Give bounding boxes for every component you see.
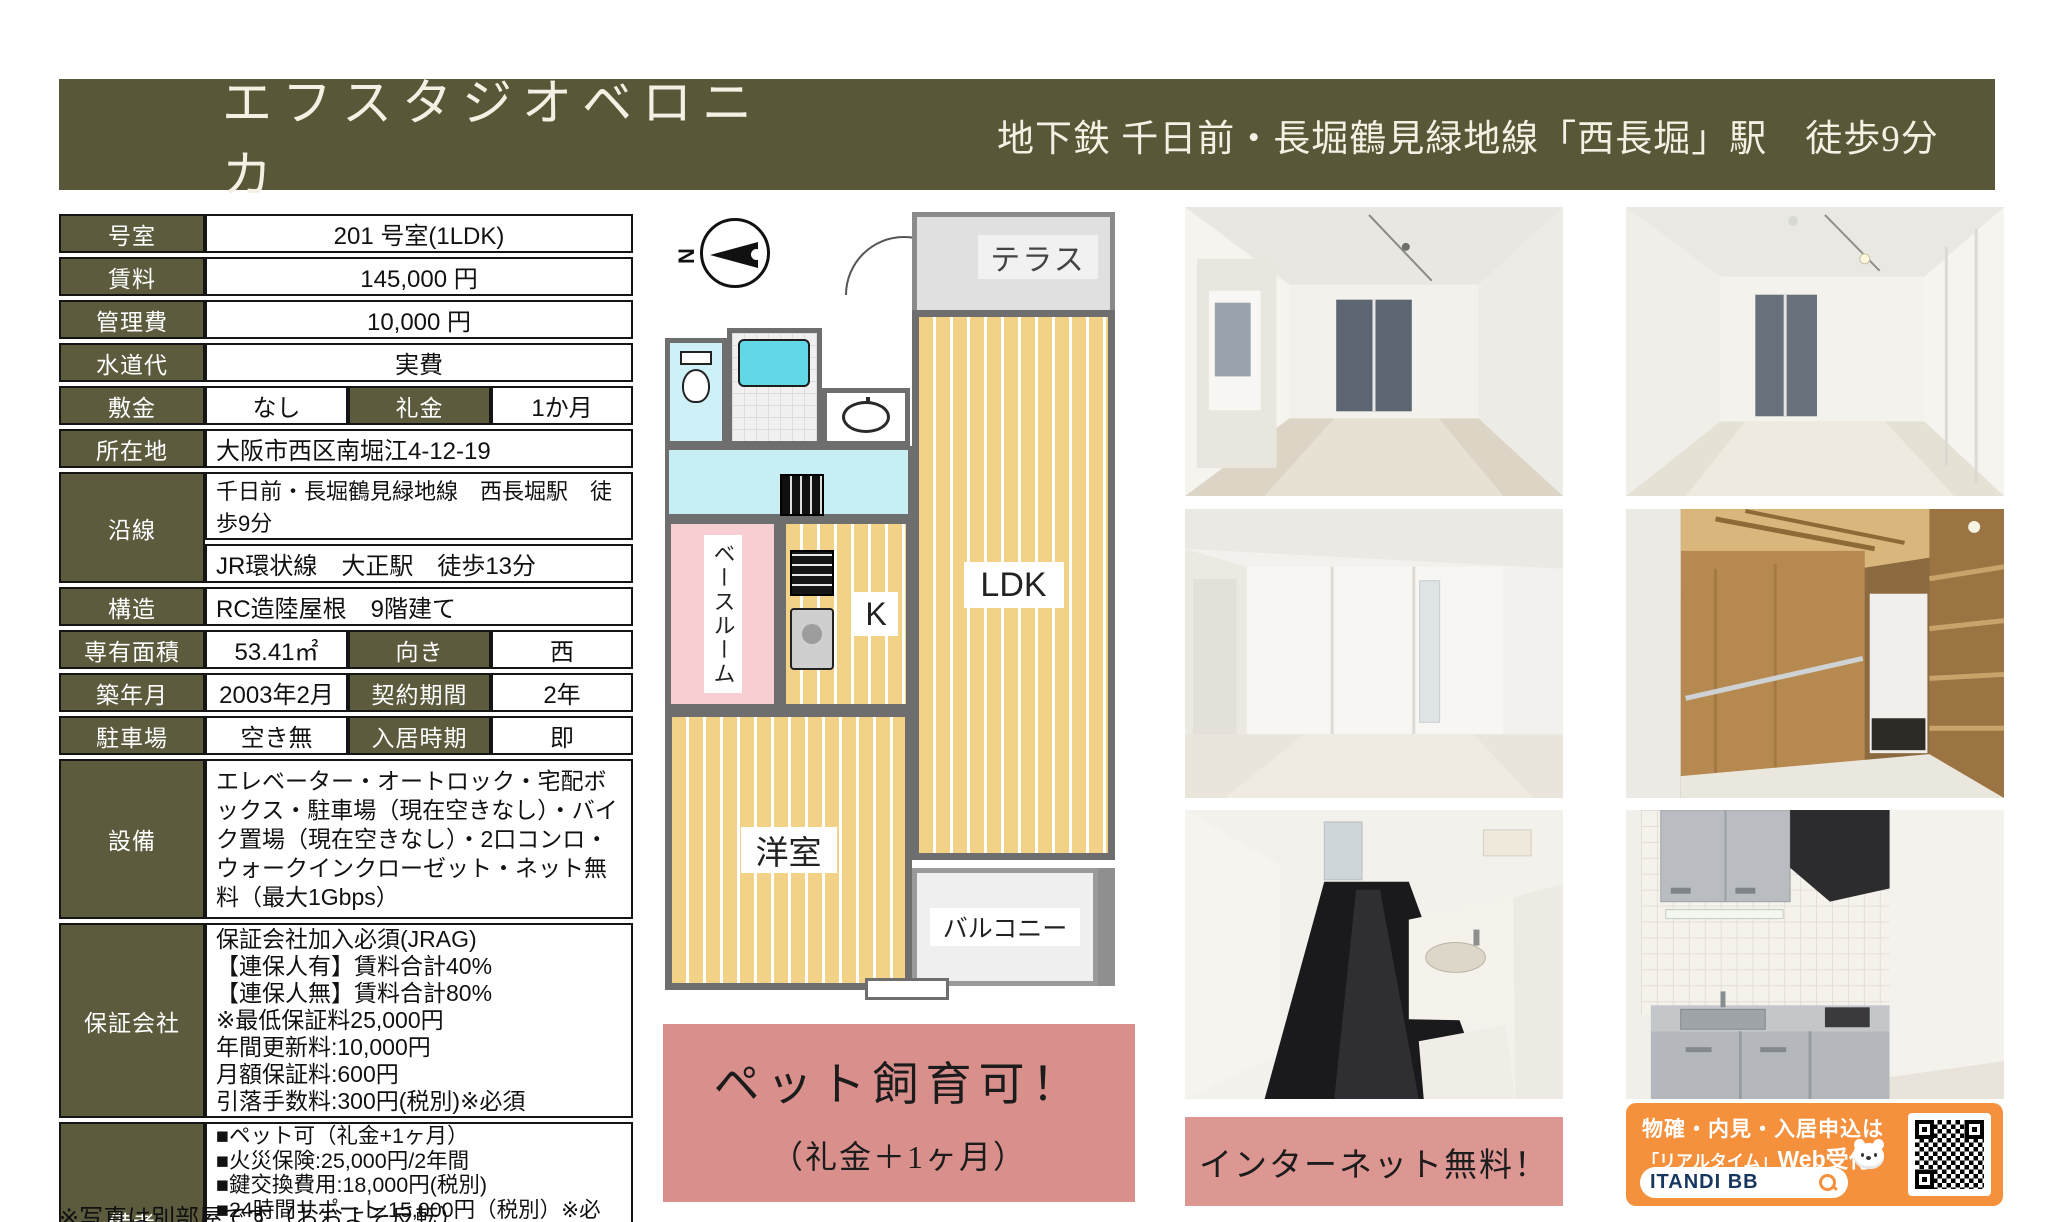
room-kitchen: K <box>780 518 912 710</box>
kitchen-label: K <box>854 592 898 636</box>
station-access-text: 地下鉄 千日前・長堀鶴見緑地線「西長堀」駅 徒歩9分 <box>997 79 1939 190</box>
parking-label: 駐車場 <box>59 716 205 755</box>
area-value: 53.41㎡ <box>205 630 348 669</box>
notes-line: ■火災保険:25,000円/2年間 <box>216 1149 622 1174</box>
base-room-label: ベースルーム <box>704 535 742 693</box>
room-number-value: 201 号室(1LDK) <box>205 214 633 253</box>
water-label: 水道代 <box>59 343 205 382</box>
western-room-label: 洋室 <box>741 827 837 873</box>
photo-walkin-closet <box>1626 509 2004 798</box>
guarantor-value: 保証会社加入必須(JRAG) 【連保人有】賃料合計40% 【連保人無】賃料合計8… <box>205 923 633 1118</box>
photo-disclaimer-note: ※写真は別部屋です（おおよそ反転） <box>59 1198 463 1222</box>
mgmt-fee-label: 管理費 <box>59 300 205 339</box>
train-line-value-1: 千日前・長堀鶴見緑地線 西長堀駅 徒歩9分 <box>205 472 633 540</box>
internet-banner-text: インターネット無料！ <box>1199 1138 1549 1186</box>
water-heater-icon <box>780 474 824 516</box>
mgmt-fee-value: 10,000 円 <box>205 300 633 339</box>
qr-code <box>1908 1113 1991 1196</box>
guarantor-line: 引落手数料:300円(税別)※必須 <box>216 1088 622 1115</box>
room-western: 洋室 <box>665 710 912 990</box>
bear-mascot-icon <box>1852 1139 1886 1169</box>
internet-free-banner: インターネット無料！ <box>1185 1117 1563 1206</box>
address-value: 大阪市西区南堀江4-12-19 <box>205 429 633 468</box>
equipment-label: 設備 <box>59 759 205 919</box>
deposit-value: なし <box>205 386 348 425</box>
guarantor-line: 【連保人無】賃料合計80% <box>216 980 622 1007</box>
search-icon <box>1818 1173 1838 1193</box>
pet-allowed-banner: ペット飼育可！ （礼金＋1ヶ月） <box>663 1024 1135 1202</box>
structure-value: RC造陸屋根 9階建て <box>205 587 633 626</box>
compass-icon: N <box>700 218 770 288</box>
movein-value: 即 <box>491 716 633 755</box>
room-balcony: バルコニー <box>912 868 1098 986</box>
photo-hallway-washbasin <box>1185 810 1563 1099</box>
itandi-search-bar: ITANDI BB <box>1640 1167 1848 1198</box>
entrance-notch <box>865 978 949 1000</box>
guarantor-line: 年間更新料:10,000円 <box>216 1034 622 1061</box>
room-base: ベースルーム <box>665 518 780 710</box>
balcony-label: バルコニー <box>930 908 1080 946</box>
notes-line: ■ペット可（礼金+1ヶ月） <box>216 1124 622 1149</box>
washbasin-icon <box>842 401 890 433</box>
train-line-label: 沿線 <box>59 472 205 583</box>
guarantor-label: 保証会社 <box>59 923 205 1118</box>
photo-kitchen <box>1626 810 2004 1099</box>
flyer-page: エフスタジオベロニカ 地下鉄 千日前・長堀鶴見緑地線「西長堀」駅 徒歩9分 号室… <box>0 0 2056 1222</box>
room-terrace: テラス <box>912 212 1115 318</box>
floor-plan: N テラス LDK バルコニー 洋室 K ベースルーム <box>660 212 1135 1002</box>
parking-value: 空き無 <box>205 716 348 755</box>
terrace-label: テラス <box>978 235 1098 279</box>
equipment-value: エレベーター・オートロック・宅配ボックス・駐車場（現在空きなし）・バイク置場（現… <box>205 759 633 919</box>
guarantor-line: ※最低保証料25,000円 <box>216 1007 622 1034</box>
room-ldk: LDK <box>912 310 1115 860</box>
guarantor-line: 月額保証料:600円 <box>216 1061 622 1088</box>
structure-label: 構造 <box>59 587 205 626</box>
balcony-wall-stub <box>1098 868 1115 986</box>
keymoney-value: 1か月 <box>491 386 633 425</box>
ldk-label: LDK <box>964 562 1064 608</box>
itandi-badge: 物確・内見・入居申込は 「リアルタイム」Web受付 ITANDI BB <box>1626 1103 2003 1206</box>
area-label: 専有面積 <box>59 630 205 669</box>
itandi-search-text: ITANDI BB <box>1650 1171 1818 1194</box>
photo-ldk-corridor <box>1185 207 1563 496</box>
contract-label: 契約期間 <box>348 673 491 712</box>
water-value: 実費 <box>205 343 633 382</box>
direction-label: 向き <box>348 630 491 669</box>
built-date-label: 築年月 <box>59 673 205 712</box>
deposit-label: 敷金 <box>59 386 205 425</box>
washbasin-area <box>822 388 910 446</box>
photo-room-sliding-doors <box>1185 509 1563 798</box>
pet-banner-line2: （礼金＋1ヶ月） <box>771 1132 1027 1178</box>
header-bar: エフスタジオベロニカ 地下鉄 千日前・長堀鶴見緑地線「西長堀」駅 徒歩9分 <box>59 79 1995 190</box>
itandi-line1: 物確・内見・入居申込は <box>1642 1113 1884 1143</box>
guarantor-line: 保証会社加入必須(JRAG) <box>216 926 622 953</box>
notes-line: ■鍵交換費用:18,000円(税別) <box>216 1173 622 1198</box>
train-line-value-2: JR環状線 大正駅 徒歩13分 <box>205 544 633 583</box>
spec-table: 号室 201 号室(1LDK) 賃料 145,000 円 管理費 10,000 … <box>59 210 633 1222</box>
rent-value: 145,000 円 <box>205 257 633 296</box>
room-toilet <box>665 338 727 446</box>
keymoney-label: 礼金 <box>348 386 491 425</box>
photo-room-closet <box>1626 207 2004 496</box>
rent-label: 賃料 <box>59 257 205 296</box>
movein-label: 入居時期 <box>348 716 491 755</box>
pet-banner-line1: ペット飼育可！ <box>714 1048 1085 1114</box>
stove-icon <box>790 550 834 596</box>
direction-value: 西 <box>491 630 633 669</box>
room-bath <box>727 328 822 446</box>
address-label: 所在地 <box>59 429 205 468</box>
toilet-icon <box>680 351 712 365</box>
contract-value: 2年 <box>491 673 633 712</box>
kitchen-sink-icon <box>790 608 834 670</box>
compass-north-letter: N <box>674 248 700 264</box>
room-number-label: 号室 <box>59 214 205 253</box>
bathtub-icon <box>738 339 810 387</box>
property-title: エフスタジオベロニカ <box>222 79 782 190</box>
built-date-value: 2003年2月 <box>205 673 348 712</box>
guarantor-line: 【連保人有】賃料合計40% <box>216 953 622 980</box>
